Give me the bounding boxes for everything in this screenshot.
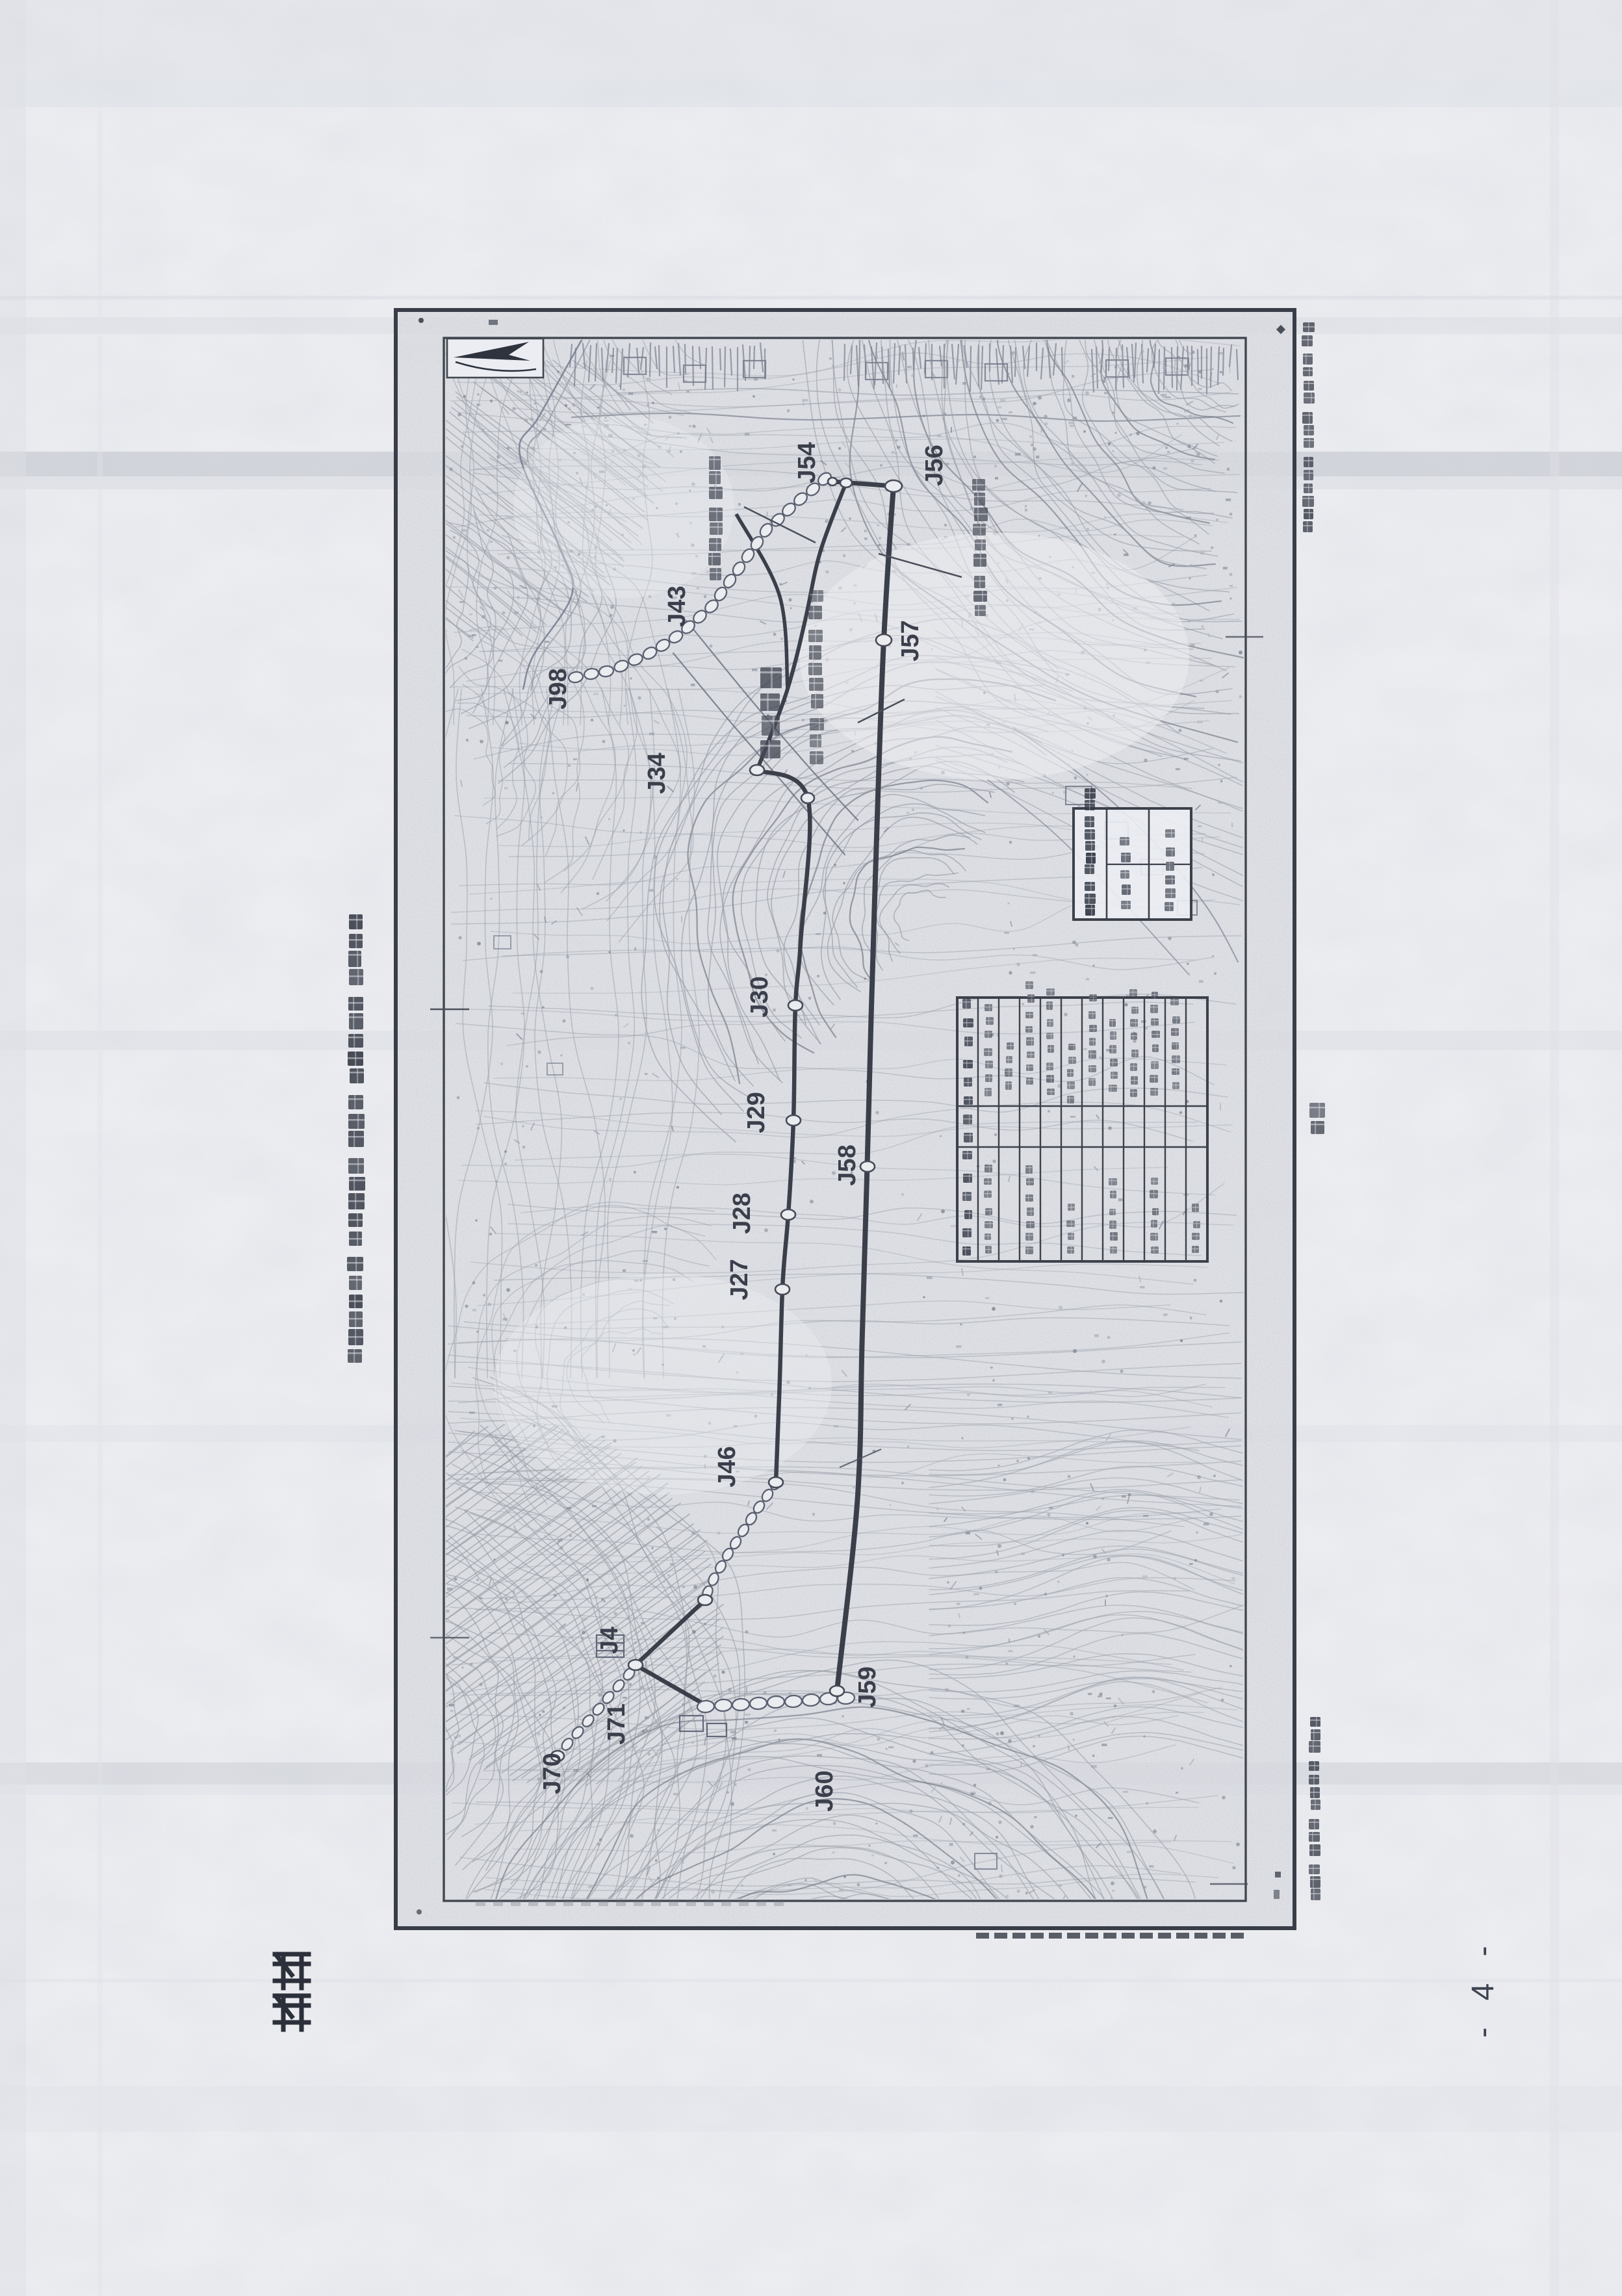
svg-text:J34: J34	[643, 753, 671, 793]
svg-text:J58: J58	[834, 1144, 861, 1185]
svg-text:J56: J56	[921, 445, 948, 485]
svg-text:J70: J70	[539, 1753, 566, 1794]
svg-text:J27: J27	[726, 1259, 753, 1300]
svg-text:J30: J30	[746, 976, 773, 1017]
svg-text:J54: J54	[793, 442, 821, 483]
svg-text:J4: J4	[596, 1627, 623, 1654]
svg-text:J59: J59	[854, 1666, 881, 1707]
svg-text:J98: J98	[545, 668, 572, 709]
svg-text:J28: J28	[728, 1193, 756, 1233]
svg-text:- 4 -: - 4 -	[1466, 1937, 1500, 2037]
svg-text:J71: J71	[603, 1703, 630, 1744]
svg-text:J46: J46	[714, 1446, 741, 1487]
svg-text:J43: J43	[663, 586, 691, 626]
svg-text:J29: J29	[743, 1092, 770, 1133]
svg-text:J57: J57	[897, 620, 924, 661]
svg-text:J60: J60	[811, 1770, 838, 1811]
